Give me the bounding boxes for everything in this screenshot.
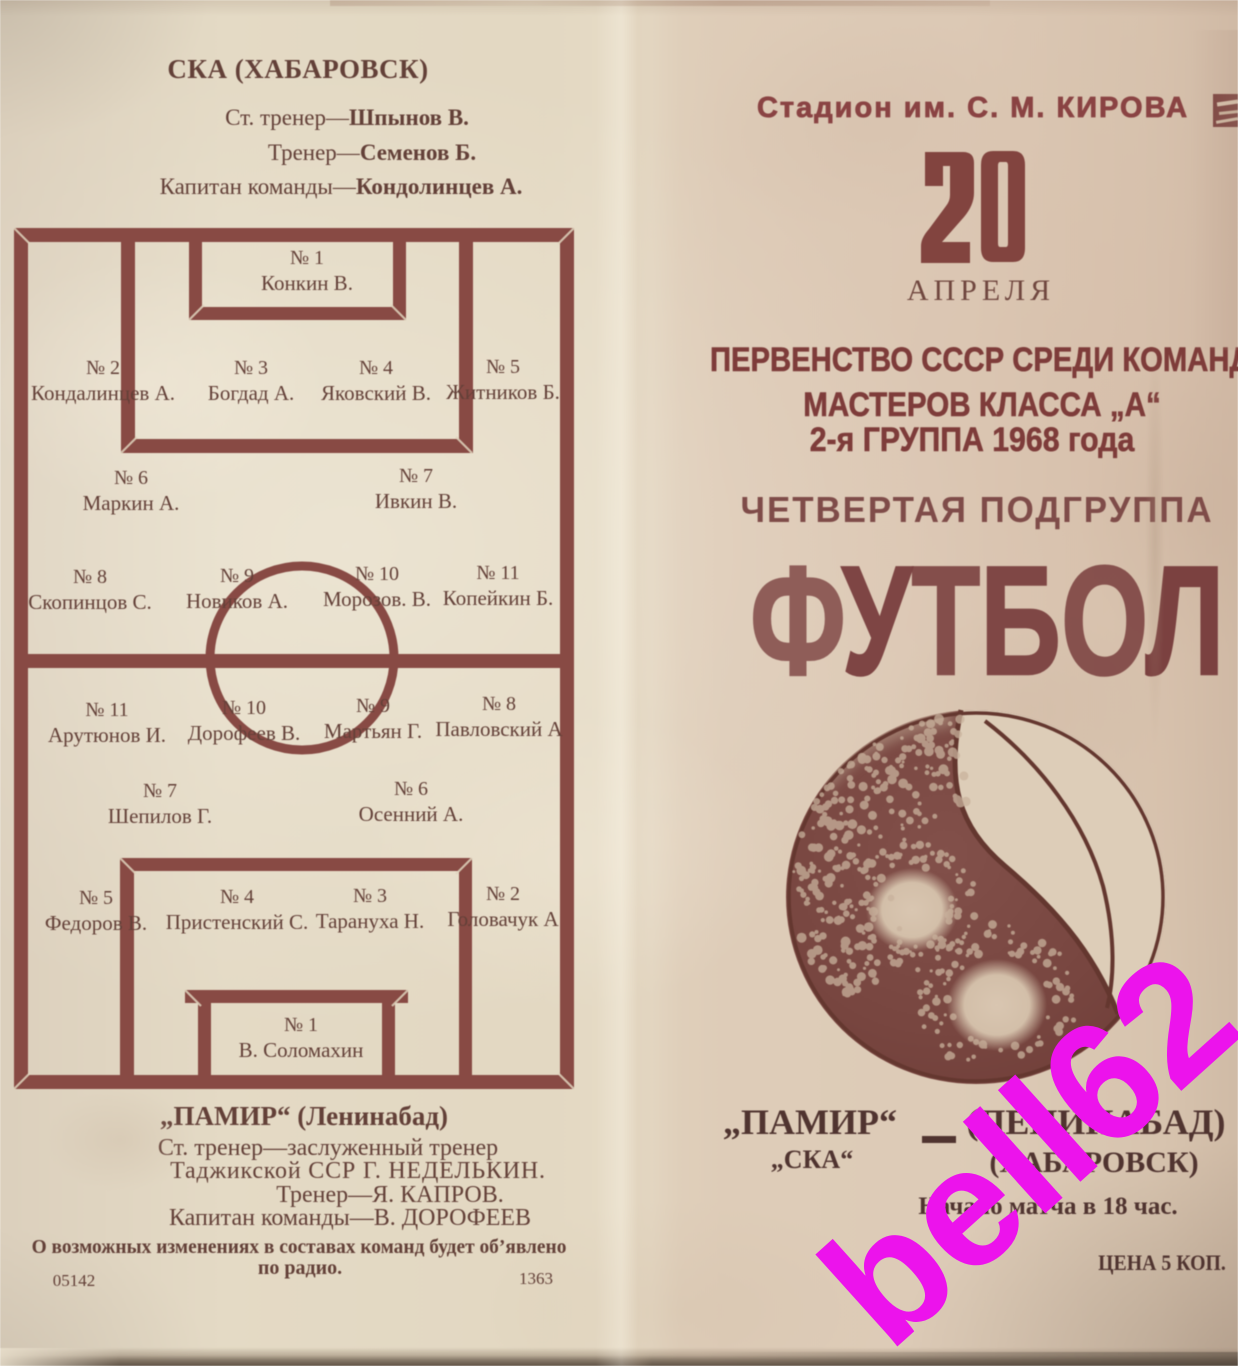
svg-text:bell62: bell62 — [787, 918, 1238, 1366]
